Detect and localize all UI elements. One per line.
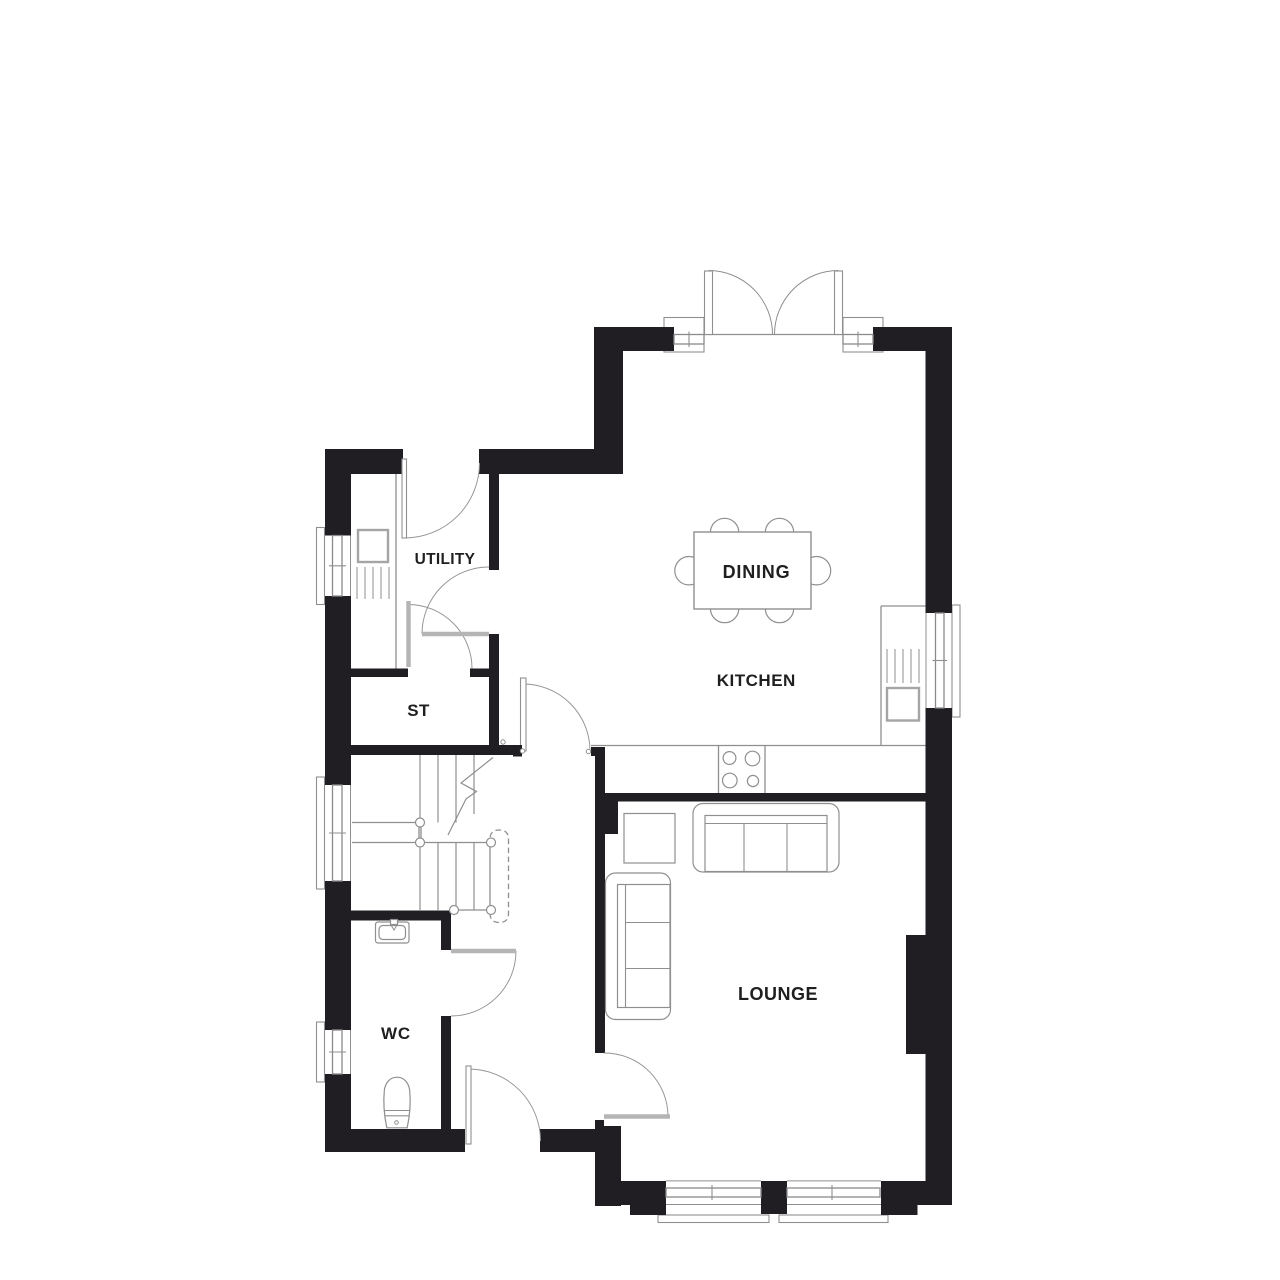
svg-text:UTILITY: UTILITY <box>415 551 476 568</box>
svg-text:LOUNGE: LOUNGE <box>738 984 818 1004</box>
svg-text:KITCHEN: KITCHEN <box>717 671 796 690</box>
svg-text:ST: ST <box>407 701 430 720</box>
svg-text:WC: WC <box>381 1024 411 1043</box>
svg-text:DINING: DINING <box>723 562 791 582</box>
